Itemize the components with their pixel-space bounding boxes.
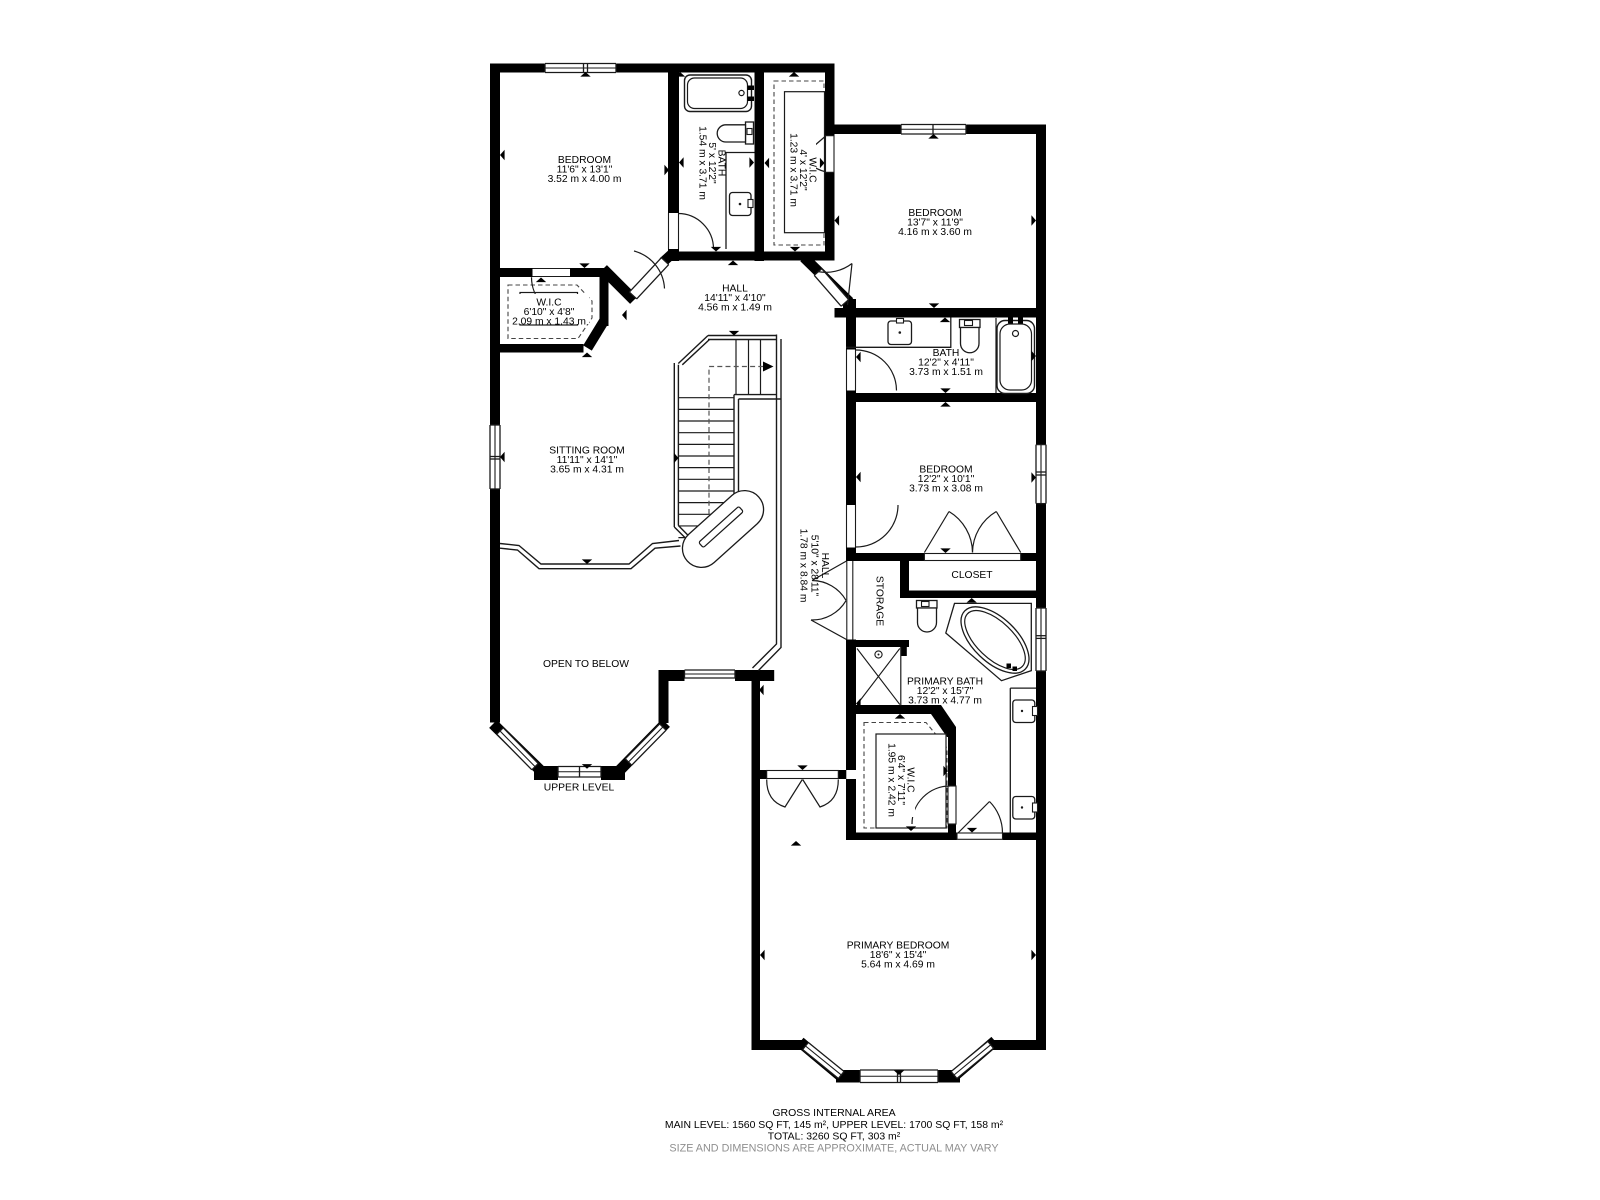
svg-text:GROSS INTERNAL AREA: GROSS INTERNAL AREA: [772, 1107, 895, 1119]
svg-text:OPEN TO BELOW: OPEN TO BELOW: [543, 659, 629, 670]
svg-text:5'10" x 28'11": 5'10" x 28'11": [808, 535, 819, 597]
svg-text:3.52 m x 4.00 m: 3.52 m x 4.00 m: [548, 174, 622, 185]
svg-text:1.54 m x 3.71 m: 1.54 m x 3.71 m: [697, 126, 708, 200]
svg-text:HALL: HALL: [819, 553, 830, 579]
svg-text:3.73 m x 1.51 m: 3.73 m x 1.51 m: [909, 367, 983, 378]
svg-text:UPPER LEVEL: UPPER LEVEL: [544, 783, 615, 794]
svg-text:SIZE AND DIMENSIONS ARE APPROX: SIZE AND DIMENSIONS ARE APPROXIMATE, ACT…: [669, 1142, 998, 1154]
svg-text:STORAGE: STORAGE: [874, 576, 885, 626]
svg-text:3.65 m x 4.31 m: 3.65 m x 4.31 m: [550, 464, 624, 475]
svg-text:3.73 m x 3.08 m: 3.73 m x 3.08 m: [909, 484, 983, 495]
svg-text:TOTAL: 3260 SQ FT, 303 m²: TOTAL: 3260 SQ FT, 303 m²: [768, 1132, 901, 1143]
svg-text:4.16 m x 3.60 m: 4.16 m x 3.60 m: [898, 227, 972, 238]
svg-text:5.64 m x 4.69 m: 5.64 m x 4.69 m: [861, 960, 935, 971]
svg-text:2.09 m x 1.43 m: 2.09 m x 1.43 m: [512, 316, 586, 327]
svg-text:3.73 m x 4.77 m: 3.73 m x 4.77 m: [908, 696, 982, 707]
svg-text:1.95 m x 2.42 m: 1.95 m x 2.42 m: [886, 743, 897, 817]
svg-text:MAIN LEVEL: 1560 SQ FT, 145 m²: MAIN LEVEL: 1560 SQ FT, 145 m², UPPER LE…: [665, 1120, 1004, 1131]
svg-text:CLOSET: CLOSET: [951, 570, 993, 581]
svg-text:4.56 m x 1.49 m: 4.56 m x 1.49 m: [698, 302, 772, 313]
svg-text:1.78 m x 8.84 m: 1.78 m x 8.84 m: [798, 529, 809, 603]
svg-text:1.23 m x 3.71 m: 1.23 m x 3.71 m: [788, 133, 799, 207]
